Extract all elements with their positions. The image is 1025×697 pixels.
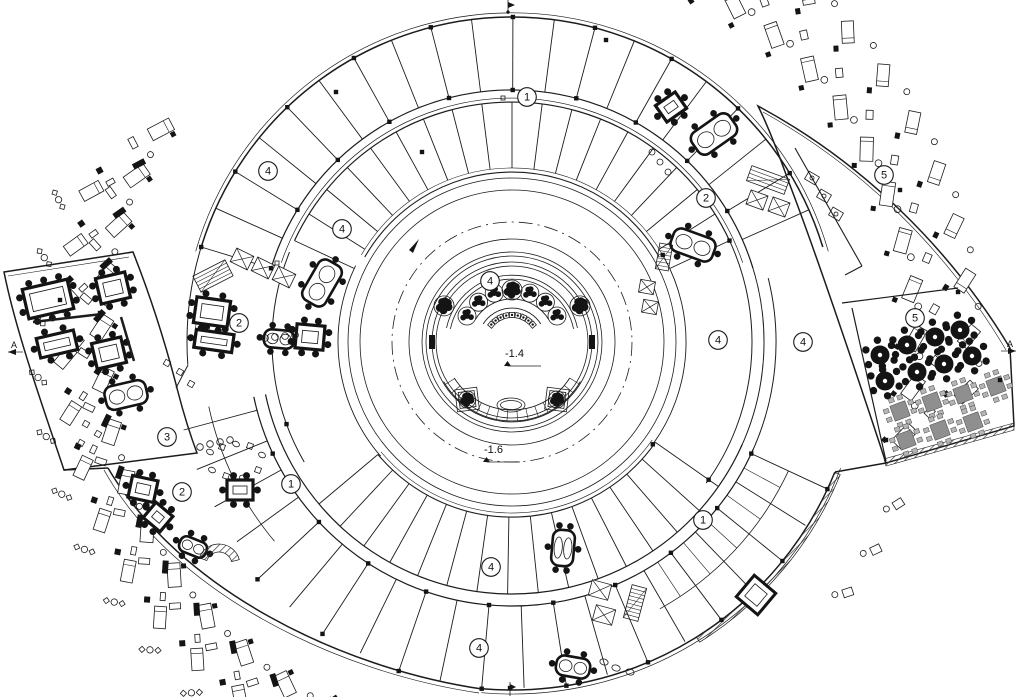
zone-label: 1 bbox=[518, 88, 537, 107]
tree-icon bbox=[459, 391, 476, 408]
svg-text:A: A bbox=[1007, 339, 1013, 349]
svg-text:4: 4 bbox=[339, 224, 345, 236]
svg-text:1: 1 bbox=[524, 92, 530, 104]
svg-text:4: 4 bbox=[487, 276, 493, 288]
zone-label: 2 bbox=[230, 314, 249, 333]
svg-text:A: A bbox=[11, 340, 17, 350]
zone-label: 2 bbox=[173, 483, 192, 502]
zone-label: 5 bbox=[875, 166, 894, 185]
tree-icon bbox=[434, 296, 454, 316]
tree-icon bbox=[548, 391, 565, 408]
zone-label: 4 bbox=[709, 331, 728, 350]
zone-label: 3 bbox=[158, 428, 177, 447]
zone-label: 1 bbox=[694, 511, 713, 530]
svg-text:4: 4 bbox=[476, 643, 482, 655]
svg-text:-1.6: -1.6 bbox=[484, 444, 503, 456]
floor-plan: AA-1.4-1.61112223444444455 bbox=[0, 0, 1025, 697]
svg-text:-1.4: -1.4 bbox=[505, 348, 524, 360]
svg-text:4: 4 bbox=[488, 562, 494, 574]
zone-label: 1 bbox=[282, 475, 301, 494]
zone-label: 4 bbox=[482, 558, 501, 577]
svg-text:5: 5 bbox=[881, 170, 887, 182]
svg-text:1: 1 bbox=[700, 515, 706, 527]
svg-text:2: 2 bbox=[236, 318, 242, 330]
svg-text:4: 4 bbox=[715, 335, 721, 347]
zone-label: 2 bbox=[697, 189, 716, 208]
tree-icon bbox=[502, 280, 522, 300]
svg-text:2: 2 bbox=[179, 487, 185, 499]
zone-label: 4 bbox=[481, 272, 500, 291]
zone-label: 4 bbox=[794, 333, 813, 352]
svg-text:2: 2 bbox=[703, 193, 709, 205]
zone-label: 4 bbox=[333, 220, 352, 239]
svg-text:1: 1 bbox=[288, 479, 294, 491]
elevator-icon bbox=[638, 279, 655, 294]
plan-viewport: AA-1.4-1.61112223444444455 bbox=[0, 0, 1025, 697]
elevator-icon bbox=[641, 299, 658, 314]
zone-label: 4 bbox=[470, 639, 489, 658]
svg-text:4: 4 bbox=[265, 166, 271, 178]
zone-label: 5 bbox=[906, 309, 925, 328]
svg-text:5: 5 bbox=[912, 313, 918, 325]
svg-text:3: 3 bbox=[164, 432, 170, 444]
tree-icon bbox=[570, 296, 590, 316]
zone-label: 4 bbox=[259, 162, 278, 181]
svg-text:4: 4 bbox=[800, 337, 806, 349]
